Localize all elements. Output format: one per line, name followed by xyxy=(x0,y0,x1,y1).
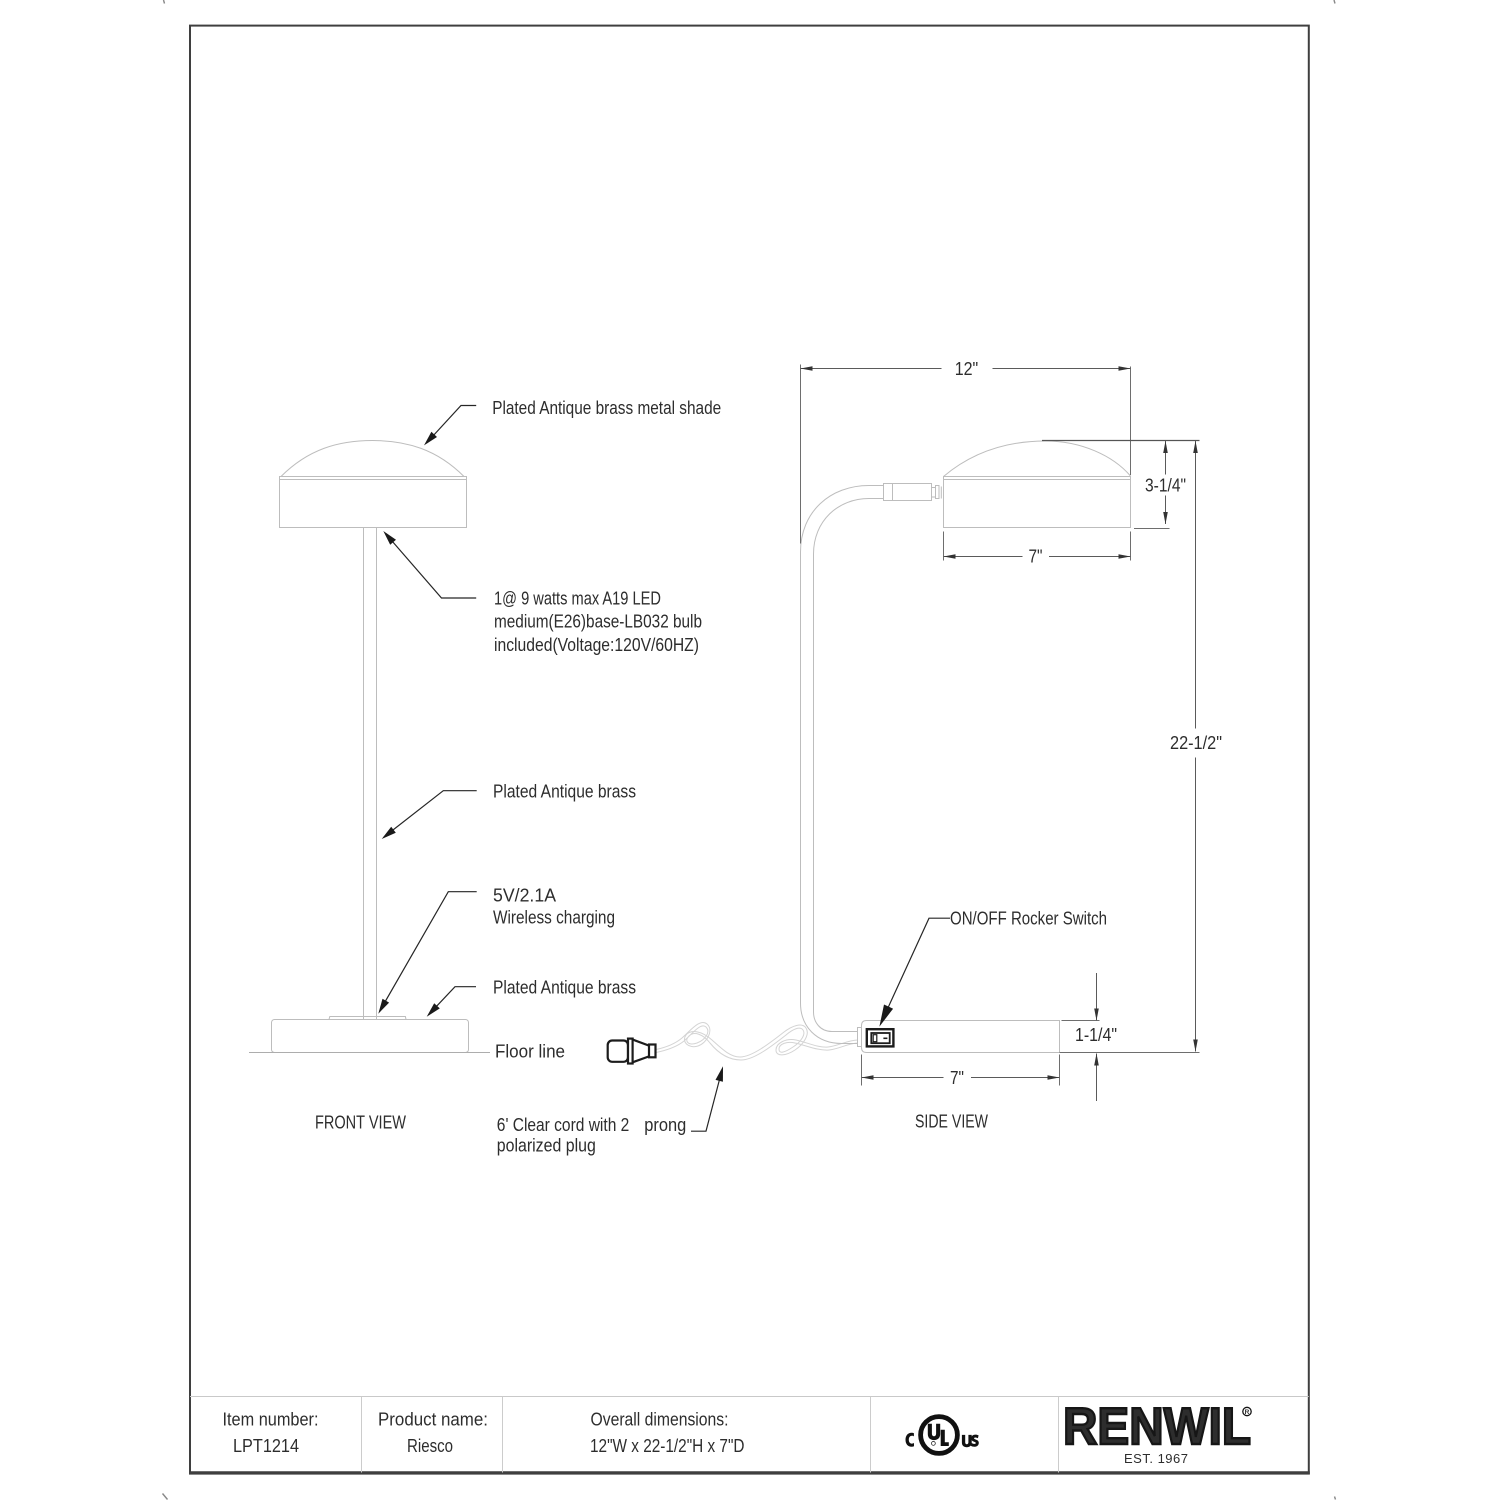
svg-text:6' Clear cord with 2: 6' Clear cord with 2 xyxy=(497,1115,630,1135)
svg-text:prong: prong xyxy=(644,1115,686,1135)
svg-text:3-1/4": 3-1/4" xyxy=(1145,476,1186,496)
svg-text:included(Voltage:120V/60HZ): included(Voltage:120V/60HZ) xyxy=(494,635,699,655)
svg-text:Overall dimensions:: Overall dimensions: xyxy=(591,1409,729,1429)
svg-text:7": 7" xyxy=(950,1068,964,1088)
svg-text:7": 7" xyxy=(1029,547,1043,567)
svg-text:22-1/2": 22-1/2" xyxy=(1170,733,1222,753)
svg-text:Item number:: Item number: xyxy=(223,1409,319,1429)
svg-text:medium(E26)base-LB032 bulb: medium(E26)base-LB032 bulb xyxy=(494,611,702,631)
svg-text:Plated Antique brass: Plated Antique brass xyxy=(493,977,636,997)
svg-text:LPT1214: LPT1214 xyxy=(233,1436,299,1456)
svg-text:1@ 9 watts max A19 LED: 1@ 9 watts max A19 LED xyxy=(494,588,661,608)
svg-text:FRONT VIEW: FRONT VIEW xyxy=(315,1113,406,1133)
svg-text:Plated Antique brass metal sha: Plated Antique brass metal shade xyxy=(492,398,721,418)
svg-text:Riesco: Riesco xyxy=(407,1436,453,1456)
svg-text:EST. 1967: EST. 1967 xyxy=(1124,1451,1188,1466)
svg-text:polarized plug: polarized plug xyxy=(497,1136,596,1156)
svg-text:1-1/4": 1-1/4" xyxy=(1075,1025,1117,1045)
svg-text:12"W x 22-1/2"H x 7"D: 12"W x 22-1/2"H x 7"D xyxy=(590,1436,745,1456)
svg-text:Plated Antique brass: Plated Antique brass xyxy=(493,781,636,801)
svg-text:ON/OFF Rocker Switch: ON/OFF Rocker Switch xyxy=(950,909,1107,929)
svg-text:5V/2.1A: 5V/2.1A xyxy=(493,886,556,906)
svg-text:12": 12" xyxy=(955,359,979,379)
svg-text:R: R xyxy=(1245,1409,1250,1416)
svg-text:RENWIL: RENWIL xyxy=(1063,1398,1251,1456)
svg-text:Wireless charging: Wireless charging xyxy=(493,908,615,928)
svg-text:SIDE VIEW: SIDE VIEW xyxy=(915,1112,988,1132)
svg-text:Floor line: Floor line xyxy=(495,1042,565,1062)
svg-text:Product name:: Product name: xyxy=(378,1409,488,1429)
